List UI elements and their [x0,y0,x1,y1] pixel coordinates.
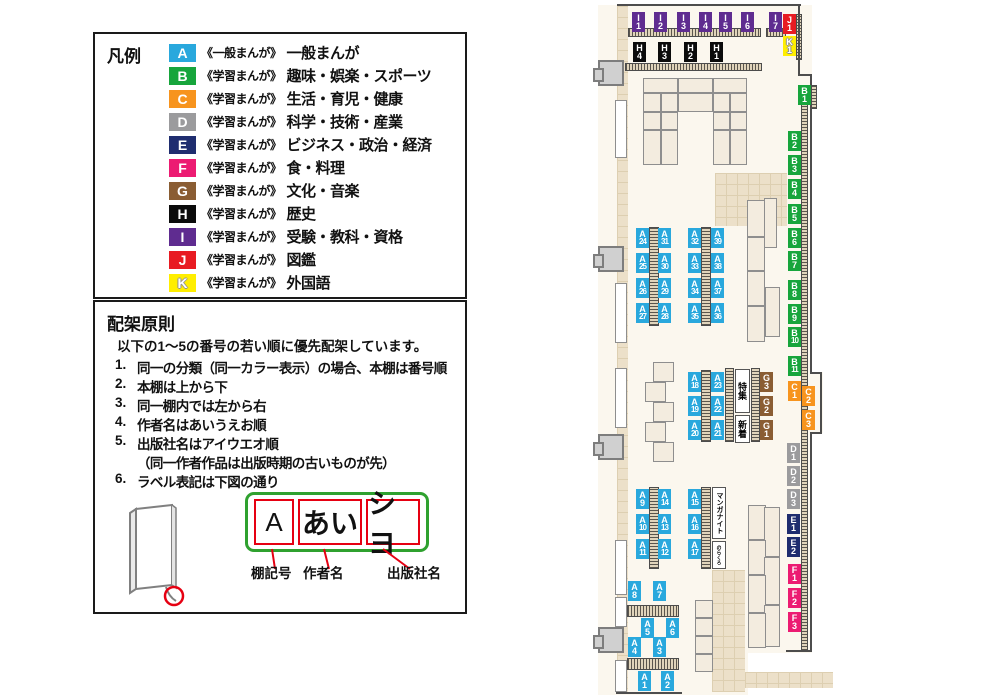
shelf-block [643,93,661,112]
wall-segment [615,100,627,158]
shelf-label-A39: A39 [711,228,724,248]
wall-segment [615,540,627,595]
shelf-label-A14: A14 [658,489,671,509]
shelf-block [730,112,747,130]
wall-segment [615,283,627,343]
wall-segment [615,660,627,692]
shelf-label-A1: A1 [638,671,651,691]
shelf-label-J1: J1 [783,14,796,34]
shelf-block [747,237,765,271]
shelf-label-I4: I4 [699,12,712,32]
shelf-label-A6: A6 [666,618,679,638]
shelf-block [695,636,713,654]
shelf-block [713,112,730,130]
shelf-label-A28: A28 [658,303,671,323]
shelf-label-H2: H2 [684,42,697,62]
shelf-label-A37: A37 [711,278,724,298]
shelf-block [678,78,713,93]
shelf-label-I7: I7 [769,12,782,32]
shelf-label-E2: E2 [787,537,800,557]
wall [616,692,682,694]
shelf-label-A23: A23 [711,372,724,392]
shelf-label-G1: G1 [760,420,773,440]
shelf-label-C2: C2 [802,386,815,406]
shelf-label-G2: G2 [760,396,773,416]
shelf-label-A29: A29 [658,278,671,298]
shelf-label-A21: A21 [711,420,724,440]
shelf-label-F1: F1 [788,564,801,584]
shelf-strip [625,63,762,71]
shelf-label-B5: B5 [788,204,801,224]
shelf-label-A9: A9 [636,489,649,509]
shelf-label-B8: B8 [788,280,801,300]
shelf-block [730,93,747,112]
shelf-strip [801,85,808,651]
shelf-label-B3: B3 [788,155,801,175]
shelf-label-A36: A36 [711,303,724,323]
wall [786,650,812,652]
shelf-label-C3: C3 [802,410,815,430]
shelf-label-H4: H4 [633,42,646,62]
shelf-label-G3: G3 [760,372,773,392]
shelf-label-H3: H3 [658,42,671,62]
shelf-label-A25: A25 [636,253,649,273]
shelf-block [730,130,747,165]
map-text-4: のらくろ [712,541,726,569]
shelf-block [643,78,678,93]
shelf-label-C1: C1 [788,381,801,401]
shelf-label-A34: A34 [688,278,701,298]
shelf-block [764,507,780,557]
shelf-block [713,93,730,112]
map-text-2: 新着 [735,415,750,443]
shelf-label-A16: A16 [688,514,701,534]
shelf-label-A24: A24 [636,228,649,248]
wall [820,374,822,434]
shelf-label-D3: D3 [787,489,800,509]
shelf-block [653,362,674,382]
shelf-label-B7: B7 [788,251,801,271]
shelf-block [653,402,674,422]
door [598,434,624,460]
wall-segment [615,597,627,627]
shelf-block [713,78,747,93]
shelf-label-B4: B4 [788,179,801,199]
door [598,246,624,272]
floor-map: I1I2I3I4I5I6I7J1K1H4H3H2H1B1B2B3B4B5B6B7… [0,0,1000,700]
shelf-label-I3: I3 [677,12,690,32]
shelf-label-F3: F3 [788,612,801,632]
shelf-label-A32: A32 [688,228,701,248]
shelf-block [747,271,765,306]
shelf-label-A2: A2 [661,671,674,691]
shelf-label-A33: A33 [688,253,701,273]
shelf-strip [627,658,679,670]
shelf-label-A38: A38 [711,253,724,273]
shelf-label-A26: A26 [636,278,649,298]
map-text-3: マンガナイト [712,487,726,539]
page: 凡例 A《一般まんが》一般まんがB《学習まんが》趣味・娯楽・スポーツC《学習まん… [0,0,1000,700]
shelf-label-A30: A30 [658,253,671,273]
shelf-label-B10: B10 [788,327,801,347]
shelf-label-D1: D1 [787,443,800,463]
shelf-label-A13: A13 [658,514,671,534]
shelf-label-A15: A15 [688,489,701,509]
shelf-label-A10: A10 [636,514,649,534]
shelf-label-A8: A8 [628,581,641,601]
shelf-label-K1: K1 [783,36,796,56]
shelf-block [695,618,713,636]
shelf-label-A27: A27 [636,303,649,323]
shelf-label-A3: A3 [653,637,666,657]
shelf-block [645,422,666,442]
shelf-block [748,613,766,648]
shelf-block [747,306,765,342]
map-text-1: 特集 [735,369,750,413]
shelf-block [661,112,678,130]
shelf-label-A12: A12 [658,539,671,559]
shelf-label-D2: D2 [787,466,800,486]
shelf-strip [701,487,711,569]
shelf-block [645,382,666,402]
shelf-block [747,200,765,237]
shelf-label-B1: B1 [798,85,811,105]
shelf-block [653,442,674,462]
shelf-block [661,93,678,112]
shelf-label-A19: A19 [688,396,701,416]
shelf-label-F2: F2 [788,588,801,608]
shelf-label-E1: E1 [787,514,800,534]
shelf-block [695,600,713,618]
shelf-block [765,287,780,337]
shelf-label-I2: I2 [654,12,667,32]
corridor-tiles [712,570,745,692]
shelf-label-B6: B6 [788,228,801,248]
corridor-tiles [745,672,833,688]
shelf-block [661,130,678,165]
shelf-label-A35: A35 [688,303,701,323]
door [598,60,624,86]
shelf-label-A17: A17 [688,539,701,559]
shelf-block [643,130,661,165]
shelf-label-B9: B9 [788,304,801,324]
shelf-label-A4: A4 [628,637,641,657]
shelf-block [695,654,713,672]
shelf-label-I1: I1 [632,12,645,32]
wall-segment [615,368,627,428]
shelf-label-B11: B11 [788,356,801,376]
shelf-label-H1: H1 [710,42,723,62]
shelf-label-A7: A7 [653,581,666,601]
shelf-strip [701,370,711,442]
shelf-label-A18: A18 [688,372,701,392]
shelf-label-B2: B2 [788,131,801,151]
shelf-block [764,557,780,605]
shelf-block [764,605,780,647]
shelf-label-I6: I6 [741,12,754,32]
shelf-strip [701,227,711,326]
shelf-strip [725,368,734,442]
shelf-block [678,93,713,112]
wall [798,4,800,76]
wall [810,434,812,652]
wall [617,4,801,6]
shelf-strip [751,368,760,442]
shelf-block [643,112,661,130]
shelf-label-A20: A20 [688,420,701,440]
door [598,627,624,653]
shelf-label-A11: A11 [636,539,649,559]
shelf-strip [627,605,679,617]
shelf-label-A5: A5 [641,618,654,638]
shelf-label-I5: I5 [719,12,732,32]
shelf-label-A31: A31 [658,228,671,248]
shelf-label-A22: A22 [711,396,724,416]
wall [810,74,812,374]
shelf-block [764,198,777,248]
shelf-block [713,130,730,165]
